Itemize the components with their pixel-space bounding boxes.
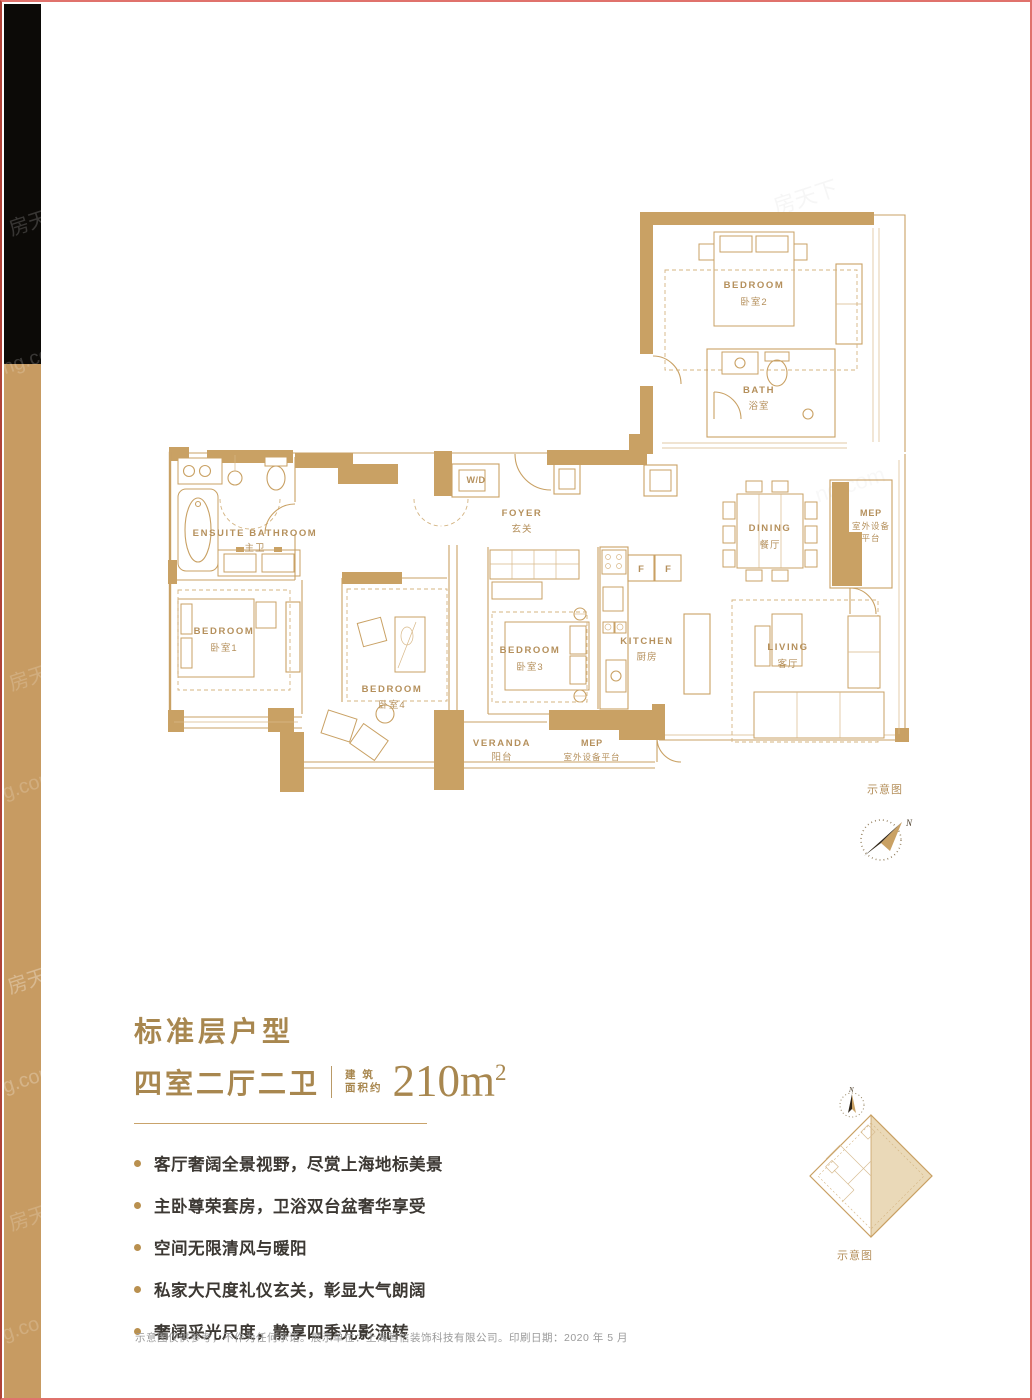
room-label: LIVING bbox=[767, 642, 808, 653]
feature-text: 主卧尊荣套房，卫浴双台盆奢华享受 bbox=[154, 1193, 426, 1217]
compass: N bbox=[840, 1086, 864, 1117]
wardrobe bbox=[490, 550, 579, 579]
mep-top-room: MEP 室外设备 平台 bbox=[830, 480, 892, 614]
bedroom1-room: BEDROOM 卧室1 bbox=[178, 580, 302, 714]
key-plan: N 示意图 bbox=[767, 1077, 987, 1272]
room-label-cn: 餐厅 bbox=[759, 539, 780, 551]
pendant-light bbox=[228, 471, 242, 485]
room-label-cn: 卧室3 bbox=[516, 661, 543, 673]
shower-drain bbox=[803, 409, 813, 419]
room-label: VERANDA bbox=[473, 738, 531, 749]
room-label: BEDROOM bbox=[362, 684, 423, 695]
cabinet bbox=[684, 614, 710, 694]
page-title: 标准层户型 bbox=[134, 1010, 564, 1050]
feature-text: 私家大尺度礼仪玄关，彰显大气朗阔 bbox=[154, 1277, 426, 1301]
room-label: BATH bbox=[743, 385, 775, 396]
disclaimer-text: 示意图仅供参考，不作为任何承诺。展示单位：上海哲信装饰科技有限公司。印刷日期：2… bbox=[135, 1330, 628, 1345]
fridge-label: F bbox=[638, 564, 644, 575]
room-label-cn: 卧室4 bbox=[378, 699, 405, 711]
bullet-icon bbox=[134, 1202, 141, 1209]
schematic-note: 示意图 bbox=[837, 1248, 873, 1262]
room-label: KITCHEN bbox=[620, 636, 673, 647]
bullet-icon bbox=[134, 1160, 141, 1167]
feature-text: 空间无限清风与暖阳 bbox=[154, 1235, 307, 1259]
room-label-cn: 厨房 bbox=[636, 651, 657, 663]
left-strip-black bbox=[4, 4, 41, 364]
bedroom3-room: BEDROOM 卧室3 bbox=[488, 547, 598, 714]
bullet-icon bbox=[134, 1244, 141, 1251]
room-label: W/D bbox=[467, 475, 486, 485]
room-label: BEDROOM bbox=[724, 280, 785, 291]
layout-type: 四室二厅二卫 bbox=[134, 1062, 320, 1102]
bath-room: BATH 浴室 bbox=[662, 349, 847, 448]
room-label-cn: 卧室1 bbox=[210, 642, 237, 654]
room-label: MEP bbox=[581, 738, 603, 748]
area-label: 建 筑 面积约 bbox=[345, 1069, 383, 1095]
dining-room: DINING 餐厅 bbox=[723, 481, 817, 581]
stool bbox=[357, 617, 386, 646]
feature-item: 私家大尺度礼仪玄关，彰显大气朗阔 bbox=[134, 1277, 564, 1301]
brochure-page: 房天 ng.co 房天 g.com 房天下 g.com 房天 g.co 房天下 … bbox=[0, 0, 1032, 1400]
title-block: 标准层户型 四室二厅二卫 建 筑 面积约 210m2 客厅奢阔全景视野，尽赏上海… bbox=[134, 1010, 564, 1361]
sink bbox=[722, 352, 758, 374]
toilet bbox=[265, 457, 287, 490]
feature-list: 客厅奢阔全景视野，尽赏上海地标美景 主卧尊荣套房，卫浴双台盆奢华享受 空间无限清… bbox=[134, 1151, 564, 1343]
room-label-cn: 主卫 bbox=[244, 542, 265, 554]
highlighted-unit bbox=[871, 1115, 932, 1237]
floor-plan: BEDROOM 卧室2 BATH 浴室 bbox=[152, 197, 922, 877]
room-label-cn: 平台 bbox=[861, 533, 880, 543]
room-label-cn: 室外设备 bbox=[852, 521, 890, 531]
room-label-cn: 室外设备平台 bbox=[563, 752, 620, 762]
room-label-cn: 客厅 bbox=[777, 658, 798, 670]
feature-item: 客厅奢阔全景视野，尽赏上海地标美景 bbox=[134, 1151, 564, 1175]
bedroom4-room: BEDROOM 卧室4 bbox=[321, 572, 447, 760]
north-label: N bbox=[848, 1086, 854, 1094]
room-label: MEP bbox=[860, 508, 882, 518]
living-room: LIVING 客厅 bbox=[732, 600, 884, 742]
area-sup: 2 bbox=[495, 1060, 507, 1085]
room-label: FOYER bbox=[502, 508, 543, 519]
area-label-top: 建 筑 bbox=[345, 1069, 375, 1081]
armchairs bbox=[321, 705, 394, 760]
dresser bbox=[492, 582, 542, 599]
bed bbox=[505, 622, 589, 690]
fridge-label: F bbox=[665, 564, 671, 575]
area-value: 210m2 bbox=[393, 1059, 507, 1104]
gold-divider bbox=[134, 1123, 427, 1124]
divider bbox=[331, 1066, 332, 1098]
dresser bbox=[395, 617, 425, 672]
north-label: N bbox=[905, 818, 913, 828]
kitchen-sink bbox=[606, 660, 626, 692]
room-label-cn: 卧室2 bbox=[740, 296, 767, 308]
compass: N bbox=[861, 818, 913, 860]
feature-item: 空间无限清风与暖阳 bbox=[134, 1235, 564, 1259]
room-label-cn: 阳台 bbox=[491, 751, 512, 763]
room-label: DINING bbox=[749, 523, 792, 534]
room-label-cn: 浴室 bbox=[748, 400, 769, 412]
feature-item: 主卧尊荣套房，卫浴双台盆奢华享受 bbox=[134, 1193, 564, 1217]
area-number: 210m bbox=[393, 1056, 496, 1106]
area-label-bottom: 面积约 bbox=[345, 1082, 383, 1094]
room-label: ENSUITE BATHROOM bbox=[193, 528, 318, 539]
building-outline bbox=[810, 1115, 932, 1237]
veranda-room: VERANDA 阳台 bbox=[464, 722, 547, 763]
room-label-cn: 玄关 bbox=[511, 523, 532, 535]
bullet-icon bbox=[134, 1286, 141, 1293]
feature-text: 客厅奢阔全景视野，尽赏上海地标美景 bbox=[154, 1151, 443, 1175]
room-label: BEDROOM bbox=[500, 645, 561, 656]
compass-needle bbox=[848, 1094, 852, 1113]
bed bbox=[699, 232, 807, 326]
ensuite-bathroom-room: ENSUITE BATHROOM 主卫 bbox=[170, 455, 317, 580]
schematic-note: 示意图 bbox=[867, 782, 903, 796]
room-label: BEDROOM bbox=[194, 626, 255, 637]
entry-door-arc bbox=[515, 454, 551, 490]
bedroom2-room: BEDROOM 卧室2 bbox=[629, 212, 905, 464]
left-strip-tan bbox=[4, 364, 41, 1400]
bed bbox=[178, 599, 276, 677]
washer bbox=[178, 458, 222, 484]
compass-needle bbox=[864, 822, 902, 856]
